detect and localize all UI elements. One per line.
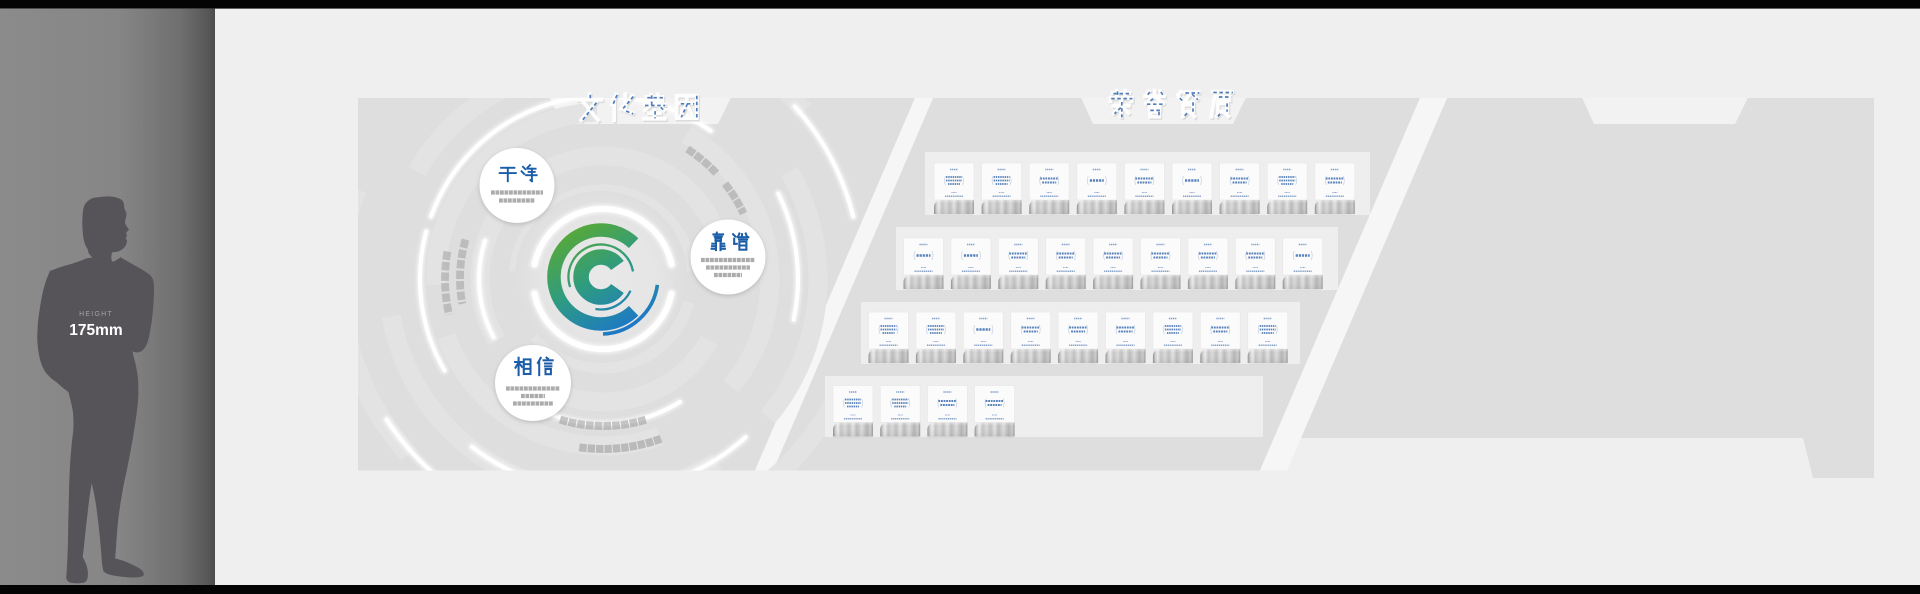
- svg-text:175mm: 175mm: [69, 322, 122, 339]
- svg-text:HEIGHT: HEIGHT: [79, 311, 113, 318]
